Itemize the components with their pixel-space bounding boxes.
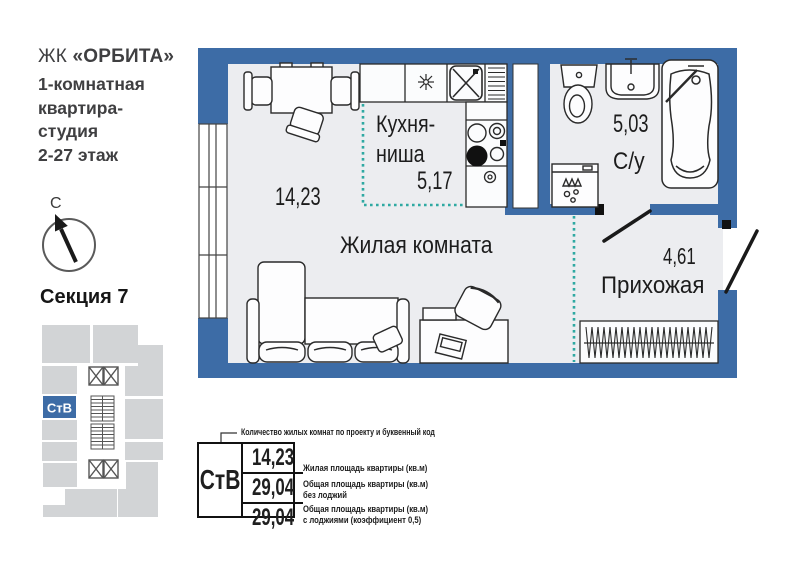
legend-callout-line xyxy=(221,433,237,442)
legend-values: 14,23 29,04 29,04 xyxy=(243,444,303,516)
hallway-area: 4,61 xyxy=(663,244,708,269)
section-unit-code: СтВ xyxy=(47,401,72,416)
apartment-subtitle: 1-комнатная квартира- студия 2-27 этаж xyxy=(38,73,145,167)
section-plan: СтВ xyxy=(42,325,163,517)
hallway-label: Прихожая xyxy=(601,271,712,301)
legend-value-total-loggia: 29,04 xyxy=(243,504,303,532)
legend-table: СтВ 14,23 29,04 29,04 xyxy=(197,442,295,518)
window xyxy=(199,124,227,318)
living-label: Жилая комната xyxy=(340,231,513,261)
legend-value-living: 14,23 xyxy=(243,444,303,474)
complex-name: «ОРБИТА» xyxy=(73,46,175,67)
legend-unit-code: СтВ xyxy=(199,444,243,516)
wardrobe xyxy=(580,321,718,363)
bathtub-icon xyxy=(662,60,718,188)
kitchen-area: 5,17 xyxy=(417,169,466,194)
washbasin-icon xyxy=(606,59,659,99)
washing-machine-icon xyxy=(552,164,598,207)
bathroom-label: С/у xyxy=(613,147,649,177)
complex-prefix: ЖК xyxy=(38,46,67,67)
stairs-icons xyxy=(91,396,114,449)
burner-icon xyxy=(418,74,434,90)
bathroom-area: 5,03 xyxy=(613,112,662,137)
compass-north-label: С xyxy=(50,195,62,213)
kitchen-label: Кухня- ниша xyxy=(376,110,448,170)
legend-callout: Количество жилых комнат по проекту и бук… xyxy=(241,427,490,437)
elevator-icons xyxy=(89,367,118,478)
living-area: 14,23 xyxy=(275,185,338,210)
vent-shaft xyxy=(513,64,538,208)
legend-value-total: 29,04 xyxy=(243,474,303,504)
complex-title: ЖК «ОРБИТА» xyxy=(38,46,174,68)
section-title: Секция 7 xyxy=(40,286,129,309)
north-arrow-icon xyxy=(43,214,95,271)
legend-label-total-loggia: Общая площадь квартиры (кв.м) с лоджиями… xyxy=(303,493,450,526)
